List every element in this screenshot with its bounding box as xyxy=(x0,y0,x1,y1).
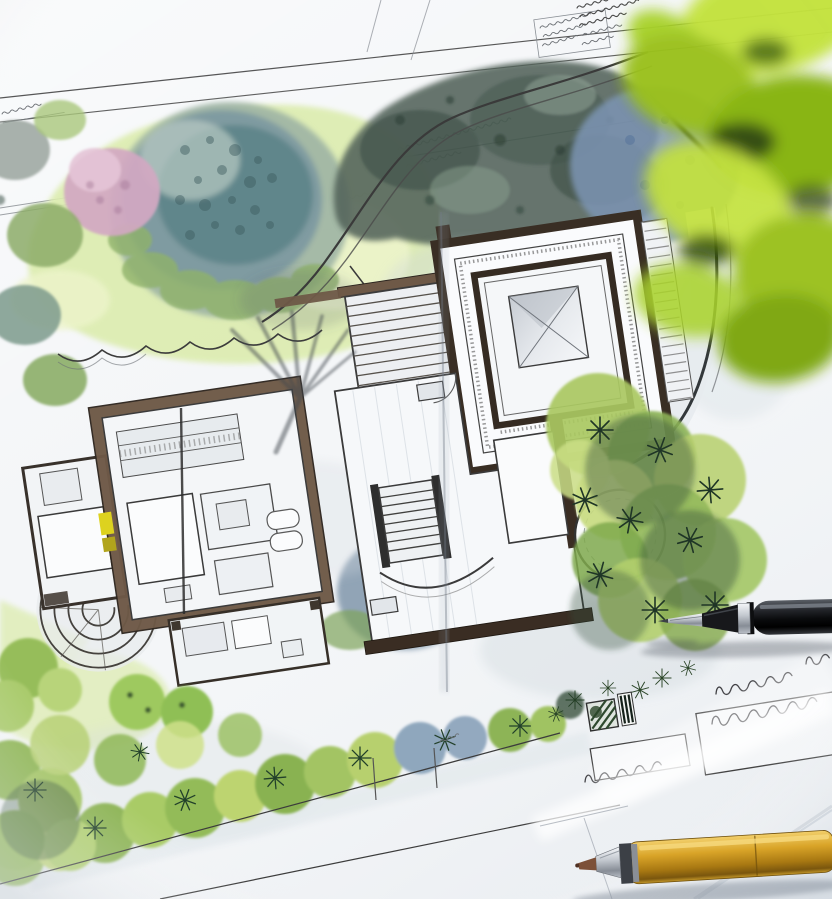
desk-photo-scene xyxy=(0,0,832,899)
pen-ferrule xyxy=(738,603,751,633)
site-plan-canvas xyxy=(0,0,832,899)
